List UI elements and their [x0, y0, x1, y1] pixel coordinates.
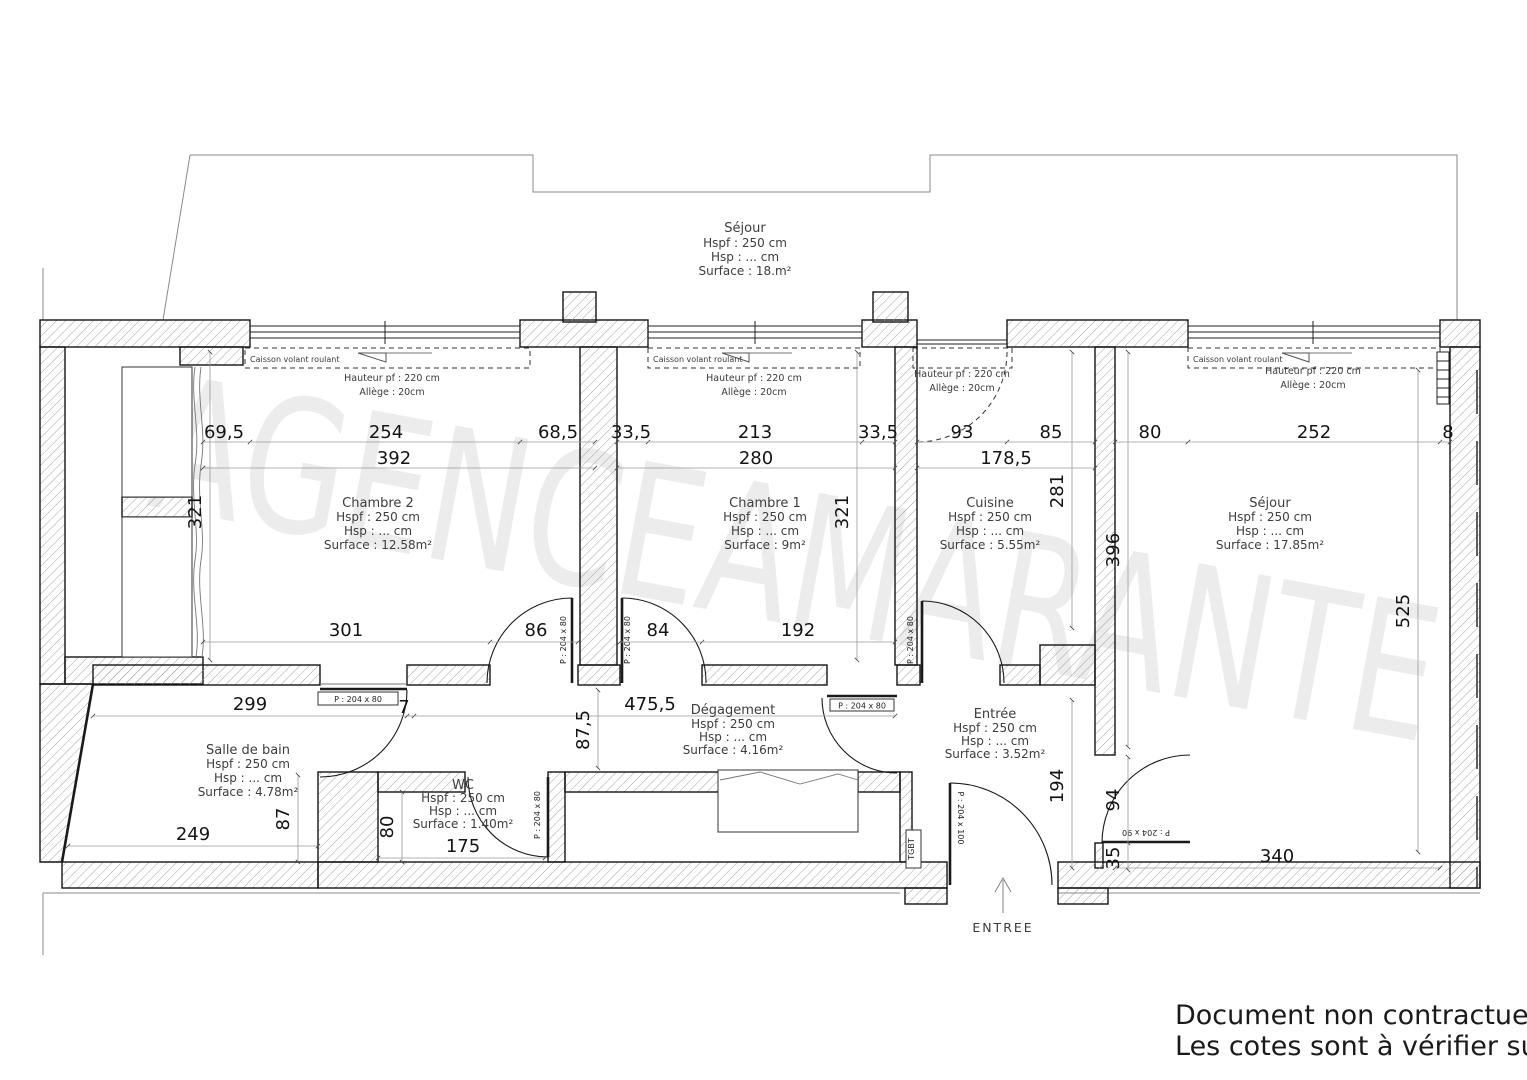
tgbt-label: TGBT: [907, 838, 916, 861]
dim-label: 8: [1442, 422, 1453, 443]
room-label-chambre1: Chambre 1 Hspf : 250 cm Hsp : ... cm Sur…: [723, 496, 807, 552]
window-sejour: [1188, 321, 1440, 344]
dim-label: 340: [1260, 846, 1294, 867]
door-degagement-entree: P : 204 x 80: [822, 696, 897, 773]
room-surface: Surface : 17.85m²: [1216, 538, 1324, 552]
dim-label: 85: [1040, 422, 1063, 443]
room-hsp: Hsp : ... cm: [711, 250, 779, 264]
room-hsp: Hsp : ... cm: [429, 804, 497, 818]
room-label-salle-de-bain: Salle de bain Hspf : 250 cm Hsp : ... cm…: [198, 743, 299, 799]
window-sill-label: Allège : 20cm: [721, 387, 786, 398]
door-size-label: P : 204 x 90: [1122, 828, 1170, 837]
room-hsp: Hsp : ... cm: [961, 734, 1029, 748]
room-surface: Surface : 1.40m²: [413, 817, 514, 831]
caisson-label: Caisson volant roulant: [250, 355, 339, 364]
disclaimer-line2: Les cotes sont à vérifier sur place: [1175, 1031, 1527, 1062]
entrance-arrow: ENTREE: [972, 878, 1033, 935]
room-hsp: Hsp : ... cm: [214, 771, 282, 785]
dim-label: 69,5: [204, 422, 244, 443]
dim-label: 86: [525, 620, 548, 641]
room-surface: Surface : 3.52m²: [945, 747, 1046, 761]
dim-label: 525: [1393, 594, 1414, 628]
room-hspf: Hspf : 250 cm: [206, 757, 290, 771]
room-surface: Surface : 9m²: [724, 538, 806, 552]
room-surface: Surface : 4.78m²: [198, 785, 299, 799]
room-hspf: Hspf : 250 cm: [336, 510, 420, 524]
door-entrance: P : 204 x 100: [950, 783, 1052, 885]
dim-label: 213: [738, 422, 772, 443]
room-name: Séjour: [1249, 496, 1291, 511]
door-size-label: P : 204 x 80: [906, 616, 915, 664]
dim-label: 321: [185, 495, 206, 529]
window-height-label: Hauteur pf : 220 cm: [1265, 366, 1361, 377]
door-size-label: P : 204 x 80: [334, 695, 382, 704]
dim-label: 192: [781, 620, 815, 641]
dim-label: 35: [1103, 847, 1124, 870]
caisson-label: Caisson volant roulant: [653, 355, 742, 364]
caisson-cuisine: Hauteur pf : 220 cm Allège : 20cm: [914, 369, 1010, 394]
disclaimer: Document non contractuel Les cotes sont …: [1175, 1000, 1527, 1062]
dim-label: 321: [832, 495, 853, 529]
window-chambre2: [250, 321, 520, 344]
room-hsp: Hsp : ... cm: [699, 730, 767, 744]
dim-label: 80: [377, 816, 398, 839]
door-salle-de-bain: P : 204 x 80: [318, 689, 407, 777]
dim-label: 249: [176, 824, 210, 845]
room-hspf: Hspf : 250 cm: [723, 510, 807, 524]
room-name: Salle de bain: [206, 743, 290, 758]
room-name: Entrée: [974, 707, 1017, 722]
window-chambre1: [648, 321, 862, 344]
dim-label: 301: [329, 620, 363, 641]
window-height-label: Hauteur pf : 220 cm: [706, 373, 802, 384]
room-surface: Surface : 18.m²: [699, 264, 792, 278]
dim-label: 392: [377, 448, 411, 469]
room-hspf: Hspf : 250 cm: [703, 236, 787, 250]
room-hspf: Hspf : 250 cm: [1228, 510, 1312, 524]
dim-label: 254: [369, 422, 403, 443]
door-size-label: P : 204 x 80: [838, 702, 886, 711]
floor-plan-drawing: AGENCEAMARANTE: [0, 0, 1527, 1080]
room-hspf: Hspf : 250 cm: [953, 721, 1037, 735]
room-name: Chambre 1: [729, 496, 801, 511]
room-hspf: Hspf : 250 cm: [691, 717, 775, 731]
window-height-label: Hauteur pf : 220 cm: [344, 373, 440, 384]
window-sill-label: Allège : 20cm: [1280, 380, 1345, 391]
room-hsp: Hsp : ... cm: [344, 524, 412, 538]
dim-label: 33,5: [611, 422, 651, 443]
dim-label: 87,5: [573, 710, 594, 750]
watermark-text: AGENCEAMARANTE: [137, 336, 1455, 785]
room-label-entree: Entrée Hspf : 250 cm Hsp : ... cm Surfac…: [945, 707, 1046, 761]
disclaimer-line1: Document non contractuel: [1175, 1000, 1527, 1031]
room-name: Dégagement: [691, 703, 775, 718]
radiator: [1437, 352, 1449, 404]
room-hspf: Hspf : 250 cm: [421, 791, 505, 805]
room-hsp: Hsp : ... cm: [956, 524, 1024, 538]
door-size-label: P : 204 x 100: [956, 792, 965, 845]
dim-label: 175: [446, 836, 480, 857]
room-label-sejour: Séjour Hspf : 250 cm Hsp : ... cm Surfac…: [1216, 496, 1324, 552]
dim-label: 280: [739, 448, 773, 469]
tgbt-panel: TGBT: [906, 830, 921, 868]
dim-label: 33,5: [858, 422, 898, 443]
room-name: Chambre 2: [342, 496, 414, 511]
door-size-label: P : 204 x 80: [623, 616, 632, 664]
room-surface: Surface : 5.55m²: [940, 538, 1041, 552]
dim-label: 87: [273, 808, 294, 831]
dim-label: 84: [647, 620, 670, 641]
room-surface: Surface : 4.16m²: [683, 743, 784, 757]
window-sill-label: Allège : 20cm: [929, 383, 994, 394]
entrance-label: ENTREE: [972, 920, 1033, 935]
dim-label: 7: [398, 697, 409, 718]
dim-label: 299: [233, 694, 267, 715]
room-label-sejour-upper: Séjour Hspf : 250 cm Hsp : ... cm Surfac…: [699, 221, 792, 278]
dim-label: 68,5: [538, 422, 578, 443]
dim-label: 475,5: [624, 694, 676, 715]
door-size-label: P : 204 x 80: [533, 791, 542, 839]
dim-label: 93: [951, 422, 974, 443]
dim-label: 252: [1297, 422, 1331, 443]
dim-label: 178,5: [980, 448, 1032, 469]
dim-label: 80: [1139, 422, 1162, 443]
window-height-label: Hauteur pf : 220 cm: [914, 369, 1010, 380]
room-name: Cuisine: [966, 496, 1014, 511]
cupboard: [718, 770, 858, 832]
dim-label: 396: [1103, 533, 1124, 567]
dim-label: 281: [1047, 474, 1068, 508]
window-sill-label: Allège : 20cm: [359, 387, 424, 398]
caisson-sejour: Caisson volant roulant Hauteur pf : 220 …: [1188, 348, 1440, 391]
room-hsp: Hsp : ... cm: [731, 524, 799, 538]
caisson-label: Caisson volant roulant: [1193, 355, 1282, 364]
dim-label: 194: [1047, 769, 1068, 803]
room-surface: Surface : 12.58m²: [324, 538, 432, 552]
room-hsp: Hsp : ... cm: [1236, 524, 1304, 538]
door-size-label: P : 204 x 80: [559, 616, 568, 664]
room-hspf: Hspf : 250 cm: [948, 510, 1032, 524]
room-label-degagement: Dégagement Hspf : 250 cm Hsp : ... cm Su…: [683, 703, 784, 757]
floor-plan-page: AGENCEAMARANTE: [0, 0, 1527, 1080]
dim-label: 94: [1103, 789, 1124, 812]
room-name: Séjour: [724, 221, 766, 236]
caisson-chambre1: Caisson volant roulant Hauteur pf : 220 …: [648, 348, 860, 398]
